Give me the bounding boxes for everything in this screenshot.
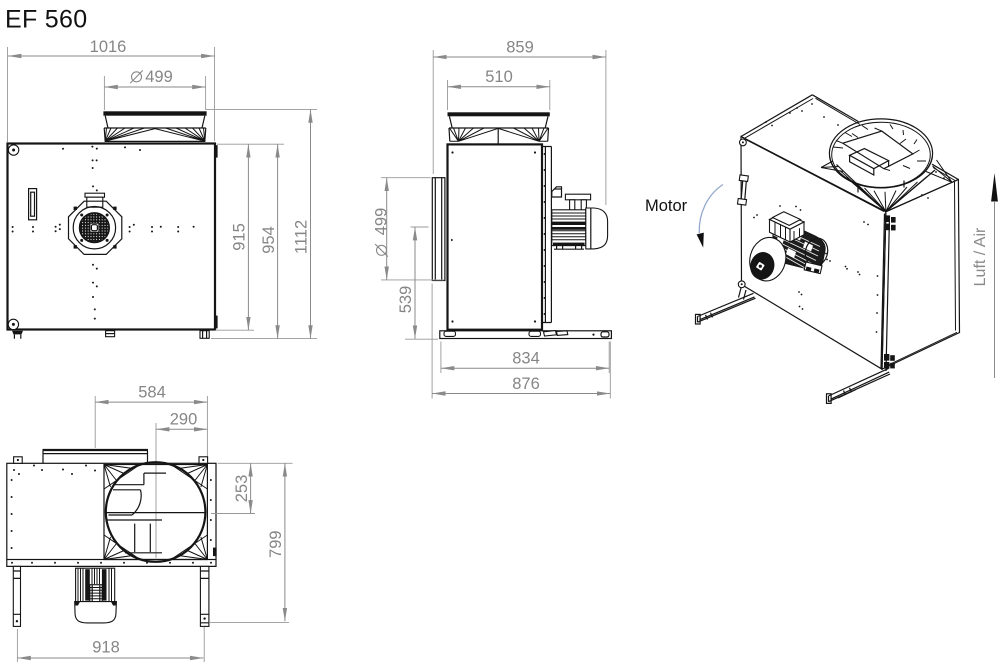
svg-text:799: 799 [267, 530, 285, 558]
svg-text:859: 859 [506, 39, 534, 57]
svg-text:EF 560: EF 560 [5, 6, 87, 34]
svg-text:499: 499 [145, 68, 173, 86]
svg-text:1016: 1016 [90, 38, 127, 56]
svg-text:253: 253 [233, 475, 251, 503]
svg-text:Motor: Motor [645, 197, 688, 215]
svg-text:954: 954 [260, 226, 278, 254]
svg-text:Luft / Air: Luft / Air [972, 227, 989, 286]
svg-text:510: 510 [485, 68, 513, 86]
svg-text:499: 499 [373, 208, 391, 236]
svg-text:1112: 1112 [293, 220, 311, 254]
svg-text:834: 834 [512, 350, 540, 368]
svg-text:290: 290 [170, 411, 198, 429]
svg-text:915: 915 [231, 223, 249, 251]
svg-text:918: 918 [92, 639, 120, 657]
svg-text:539: 539 [397, 286, 415, 314]
svg-text:584: 584 [138, 384, 166, 402]
svg-text:876: 876 [512, 375, 540, 393]
